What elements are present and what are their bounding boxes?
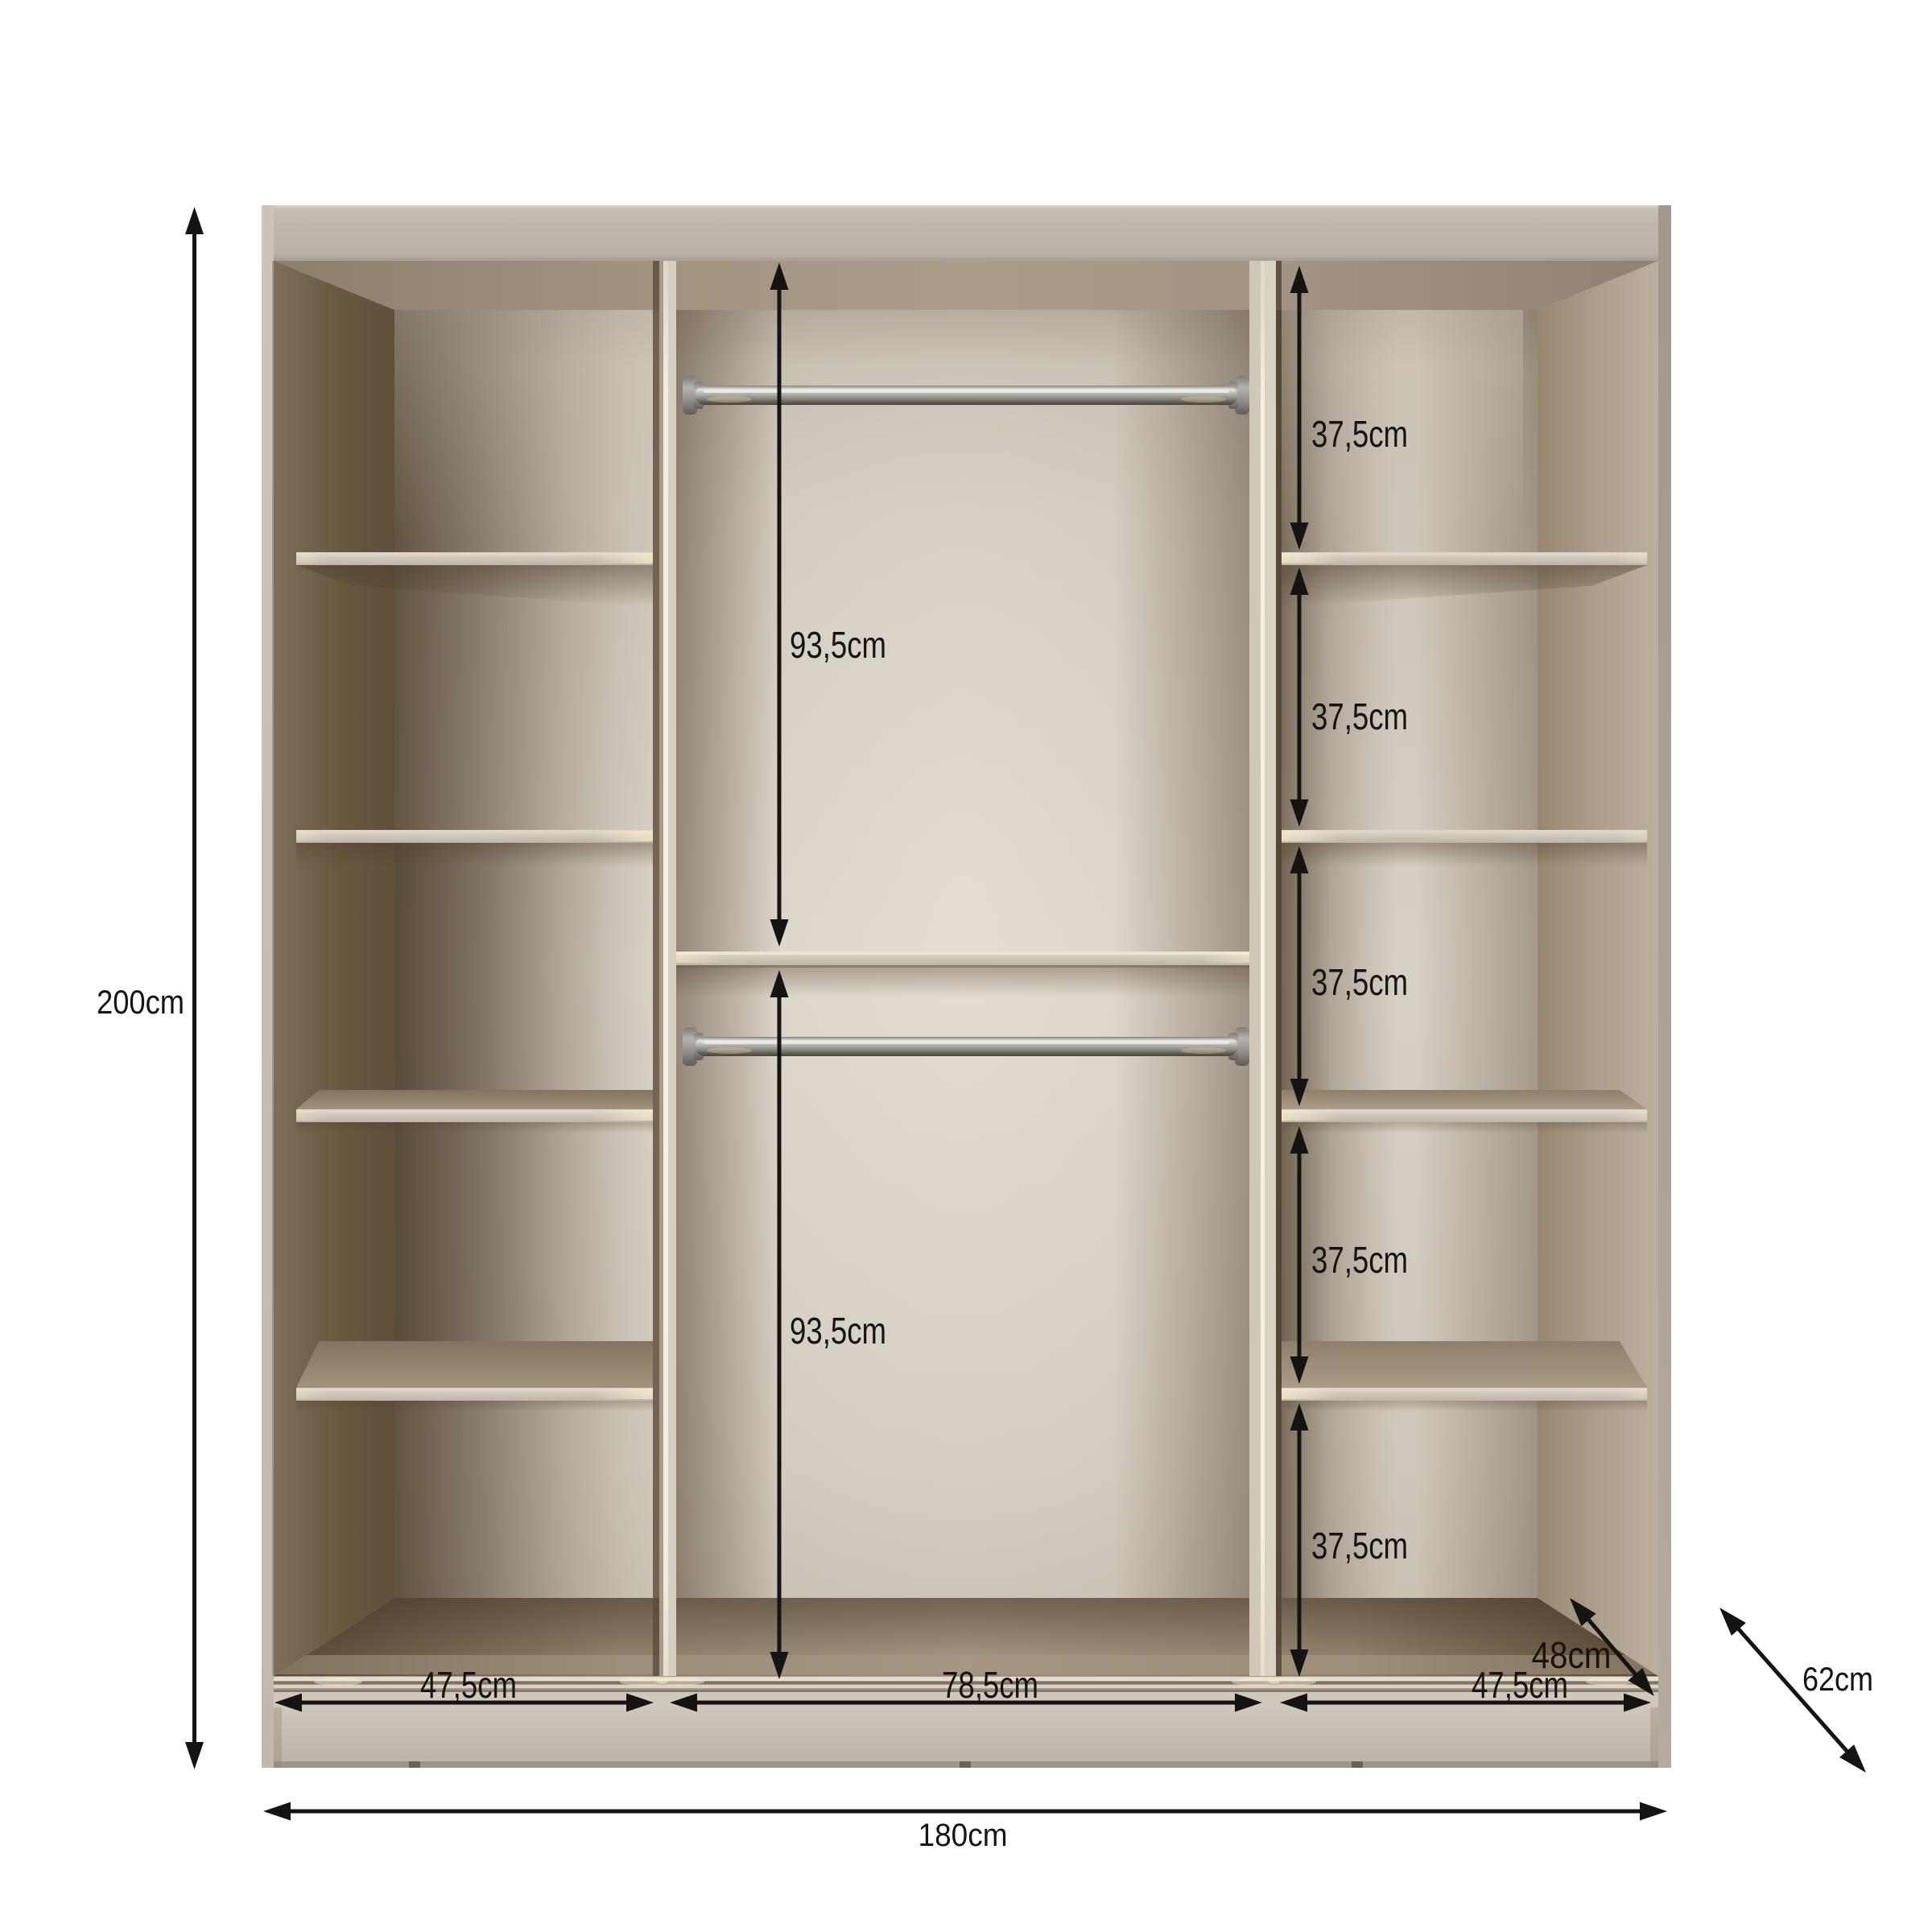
svg-text:78,5cm: 78,5cm — [942, 1664, 1038, 1706]
svg-text:37,5cm: 37,5cm — [1311, 696, 1408, 737]
svg-text:48cm: 48cm — [1532, 1634, 1612, 1676]
svg-text:180cm: 180cm — [919, 1818, 1008, 1853]
svg-text:47,5cm: 47,5cm — [420, 1664, 517, 1706]
svg-text:200cm: 200cm — [97, 983, 184, 1021]
svg-text:93,5cm: 93,5cm — [790, 624, 886, 666]
svg-text:37,5cm: 37,5cm — [1311, 413, 1408, 455]
svg-text:93,5cm: 93,5cm — [790, 1310, 886, 1352]
svg-text:37,5cm: 37,5cm — [1311, 961, 1408, 1003]
svg-text:62cm: 62cm — [1802, 1660, 1873, 1698]
svg-text:37,5cm: 37,5cm — [1311, 1239, 1408, 1281]
svg-text:37,5cm: 37,5cm — [1311, 1525, 1408, 1567]
